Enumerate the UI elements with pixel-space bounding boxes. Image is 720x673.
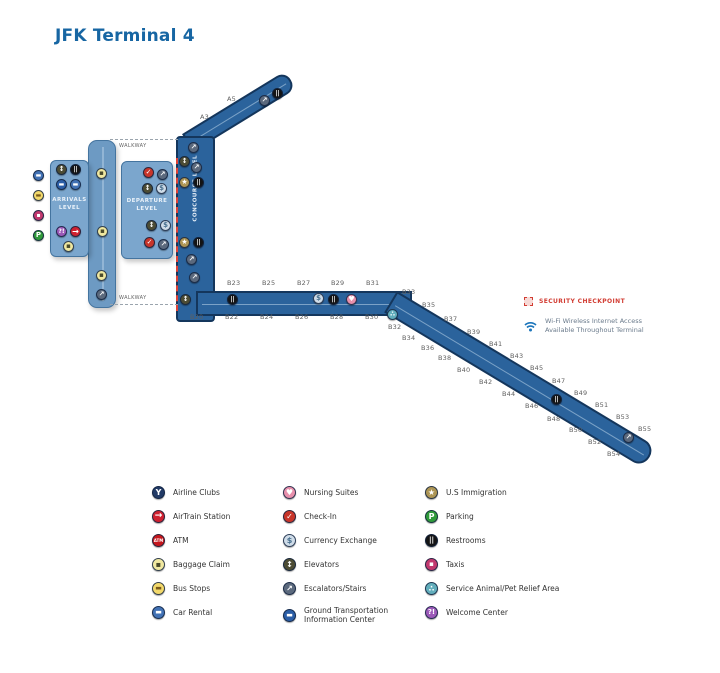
escalators-icon: ↗ bbox=[623, 432, 634, 443]
welcome-center-icon: ?! bbox=[56, 226, 67, 237]
escalators-icon: ↗ bbox=[189, 272, 200, 283]
gate-label-b49: B49 bbox=[574, 389, 587, 397]
legend-col-1: YAirline Clubs→AirTrain StationATMATM▪Ba… bbox=[152, 486, 230, 630]
walkway-dash-bottom bbox=[110, 304, 178, 305]
baggage-claim-icon: ▪ bbox=[96, 270, 107, 281]
legend-label: U.S Immigration bbox=[446, 488, 507, 497]
gate-label-b51: B51 bbox=[595, 401, 608, 409]
airtrain-icon: → bbox=[70, 226, 81, 237]
gate-label-b39: B39 bbox=[467, 328, 480, 336]
gate-label-b45: B45 bbox=[530, 364, 543, 372]
gate-label-b40: B40 bbox=[457, 366, 470, 374]
legend-item: ▬Ground Transportation Information Cente… bbox=[283, 606, 388, 624]
legend-item: ∴Service Animal/Pet Relief Area bbox=[425, 582, 559, 595]
elevators-icon: ↕ bbox=[179, 156, 190, 167]
currency-exchange-icon: $ bbox=[313, 293, 324, 304]
gate-label-b41: B41 bbox=[489, 340, 502, 348]
currency-exchange-icon: $ bbox=[160, 220, 171, 231]
legend-label: Bus Stops bbox=[173, 584, 210, 593]
elevators-icon: ↕ bbox=[56, 164, 67, 175]
us-immigration-icon: ★ bbox=[179, 237, 190, 248]
gate-label-b26: B26 bbox=[295, 313, 308, 321]
gate-label-b27: B27 bbox=[297, 279, 310, 287]
legend-label: Currency Exchange bbox=[304, 536, 377, 545]
gate-label-b43: B43 bbox=[510, 352, 523, 360]
walkway-strip bbox=[88, 140, 116, 308]
elevators-icon: ↕ bbox=[146, 220, 157, 231]
restrooms-icon: || bbox=[70, 164, 81, 175]
service-animal-icon: ∴ bbox=[387, 309, 398, 320]
legend-item: ↗Escalators/Stairs bbox=[283, 582, 388, 595]
legend-label: Taxis bbox=[446, 560, 464, 569]
legend-label: Nursing Suites bbox=[304, 488, 358, 497]
check-in-icon: ✓ bbox=[144, 237, 155, 248]
baggage-claim-icon: ▪ bbox=[96, 168, 107, 179]
legend-item: $Currency Exchange bbox=[283, 534, 388, 547]
gate-label-b37: B37 bbox=[444, 315, 457, 323]
parking-icon: P bbox=[33, 230, 44, 241]
legend-label: Welcome Center bbox=[446, 608, 508, 617]
gate-label-a3: A3 bbox=[200, 113, 209, 121]
legend-item: ▪Taxis bbox=[425, 558, 559, 571]
legend-item: ▬Bus Stops bbox=[152, 582, 230, 595]
restrooms-icon: || bbox=[328, 294, 339, 305]
legend-label: Restrooms bbox=[446, 536, 486, 545]
legend-item: ?!Welcome Center bbox=[425, 606, 559, 619]
escalators-icon: ↗ bbox=[157, 169, 168, 180]
escalators-icon: ↗ bbox=[191, 162, 202, 173]
legend-item: ATMATM bbox=[152, 534, 230, 547]
bus-stops-icon: ▬ bbox=[152, 582, 165, 595]
legend-label: AirTrain Station bbox=[173, 512, 230, 521]
legend-label: Airline Clubs bbox=[173, 488, 220, 497]
legend-col-2: ♥Nursing Suites✓Check-In$Currency Exchan… bbox=[283, 486, 388, 635]
car-rental-icon: ▬ bbox=[152, 606, 165, 619]
gate-label-b28: B28 bbox=[330, 313, 343, 321]
airtrain-icon: → bbox=[152, 510, 165, 523]
elevators-icon: ↕ bbox=[283, 558, 296, 571]
currency-exchange-icon: $ bbox=[156, 183, 167, 194]
security-checkpoint-icon bbox=[524, 297, 533, 306]
escalators-icon: ↗ bbox=[96, 289, 107, 300]
gate-label-b22: B22 bbox=[225, 313, 238, 321]
gate-label-b48: B48 bbox=[547, 415, 560, 423]
check-in-icon: ✓ bbox=[283, 510, 296, 523]
gate-label-b34: B34 bbox=[402, 334, 415, 342]
taxis-icon: ▪ bbox=[425, 558, 438, 571]
jfk-terminal4-map-page: JFK Terminal 4 ARRIVALS LEVEL DEPARTURE … bbox=[0, 0, 720, 673]
gate-label-b50: B50 bbox=[569, 426, 582, 434]
gate-label-b25: B25 bbox=[262, 279, 275, 287]
gate-label-b20: B20 bbox=[190, 313, 203, 321]
service-animal-icon: ∴ bbox=[425, 582, 438, 595]
welcome-center-icon: ?! bbox=[425, 606, 438, 619]
currency-exchange-icon: $ bbox=[283, 534, 296, 547]
gate-label-b53: B53 bbox=[616, 413, 629, 421]
wifi-icon bbox=[524, 317, 539, 336]
restrooms-icon: || bbox=[272, 88, 283, 99]
security-checkpoint-label: SECURITY CHECKPOINT bbox=[539, 298, 625, 305]
legend-label: Service Animal/Pet Relief Area bbox=[446, 584, 559, 593]
atm-icon: ATM bbox=[152, 534, 165, 547]
security-checkpoint-line bbox=[176, 158, 178, 311]
legend-item: ↕Elevators bbox=[283, 558, 388, 571]
ground-transport-icon: ▬ bbox=[56, 179, 67, 190]
gate-label-b52: B52 bbox=[588, 438, 601, 446]
gate-label-b47: B47 bbox=[552, 377, 565, 385]
car-rental-icon: ▬ bbox=[33, 170, 44, 181]
baggage-claim-icon: ▪ bbox=[152, 558, 165, 571]
legend-item: ♥Nursing Suites bbox=[283, 486, 388, 499]
legend-label: Escalators/Stairs bbox=[304, 584, 366, 593]
nursing-suites-icon: ♥ bbox=[346, 294, 357, 305]
gate-label-b33: B33 bbox=[402, 288, 415, 296]
elevators-icon: ↕ bbox=[142, 183, 153, 194]
bus-stops-icon: ▬ bbox=[33, 190, 44, 201]
legend-col-3: ★U.S ImmigrationPParking||Restrooms▪Taxi… bbox=[425, 486, 559, 630]
security-checkpoint-legend: SECURITY CHECKPOINT bbox=[524, 297, 674, 306]
us-immigration-icon: ★ bbox=[179, 177, 190, 188]
legend-label: Elevators bbox=[304, 560, 339, 569]
legend-label: Baggage Claim bbox=[173, 560, 230, 569]
legend-item: ▪Baggage Claim bbox=[152, 558, 230, 571]
airline-clubs-icon: Y bbox=[152, 486, 165, 499]
check-in-icon: ✓ bbox=[143, 167, 154, 178]
gate-label-b32: B32 bbox=[388, 323, 401, 331]
gate-label-b24: B24 bbox=[260, 313, 273, 321]
legend-item: ★U.S Immigration bbox=[425, 486, 559, 499]
wifi-legend: Wi-Fi Wireless Internet Access Available… bbox=[524, 317, 674, 336]
legend-item: PParking bbox=[425, 510, 559, 523]
taxis-icon: ▪ bbox=[33, 210, 44, 221]
gate-label-b30: B30 bbox=[365, 313, 378, 321]
legend-label: ATM bbox=[173, 536, 189, 545]
gate-label-b55: B55 bbox=[638, 425, 651, 433]
side-legend: SECURITY CHECKPOINT Wi-Fi Wireless Inter… bbox=[524, 297, 674, 336]
gate-label-b36: B36 bbox=[421, 344, 434, 352]
restrooms-icon: || bbox=[425, 534, 438, 547]
restrooms-icon: || bbox=[227, 294, 238, 305]
legend-item: ||Restrooms bbox=[425, 534, 559, 547]
legend-item: ▬Car Rental bbox=[152, 606, 230, 619]
legend-item: YAirline Clubs bbox=[152, 486, 230, 499]
ground-transport-icon: ▬ bbox=[283, 609, 296, 622]
gate-label-b31: B31 bbox=[366, 279, 379, 287]
legend-label: Parking bbox=[446, 512, 474, 521]
wifi-label: Wi-Fi Wireless Internet Access Available… bbox=[545, 317, 644, 335]
arrivals-level-label: ARRIVALS LEVEL bbox=[51, 196, 88, 213]
walkway-bottom-label: WALKWAY bbox=[119, 295, 147, 301]
us-immigration-icon: ★ bbox=[425, 486, 438, 499]
gate-label-b35: B35 bbox=[422, 301, 435, 309]
restrooms-icon: || bbox=[551, 394, 562, 405]
legend-label: Ground Transportation Information Center bbox=[304, 606, 388, 624]
legend-label: Check-In bbox=[304, 512, 337, 521]
baggage-claim-icon: ▪ bbox=[63, 241, 74, 252]
elevators-icon: ↕ bbox=[180, 294, 191, 305]
parking-icon: P bbox=[425, 510, 438, 523]
terminal-map: ARRIVALS LEVEL DEPARTURE LEVEL CONCOURSE… bbox=[0, 0, 720, 500]
escalators-icon: ↗ bbox=[259, 95, 270, 106]
legend-item: →AirTrain Station bbox=[152, 510, 230, 523]
gate-label-a5: A5 bbox=[227, 95, 236, 103]
escalators-icon: ↗ bbox=[186, 254, 197, 265]
walkway-dash-top bbox=[110, 139, 178, 140]
gate-label-b44: B44 bbox=[502, 390, 515, 398]
nursing-suites-icon: ♥ bbox=[283, 486, 296, 499]
escalators-icon: ↗ bbox=[188, 142, 199, 153]
car-rental-icon: ▬ bbox=[70, 179, 81, 190]
departure-level-label: DEPARTURE LEVEL bbox=[123, 197, 171, 214]
escalators-icon: ↗ bbox=[158, 239, 169, 250]
gate-label-b46: B46 bbox=[525, 402, 538, 410]
gate-label-b29: B29 bbox=[331, 279, 344, 287]
baggage-claim-icon: ▪ bbox=[97, 226, 108, 237]
walkway-top-label: WALKWAY bbox=[119, 143, 147, 149]
gate-label-b42: B42 bbox=[479, 378, 492, 386]
restrooms-icon: || bbox=[193, 177, 204, 188]
concourse-level-label: CONCOURSE LEVEL bbox=[191, 183, 199, 222]
restrooms-icon: || bbox=[193, 237, 204, 248]
gate-label-b23: B23 bbox=[227, 279, 240, 287]
legend-item: ✓Check-In bbox=[283, 510, 388, 523]
legend-label: Car Rental bbox=[173, 608, 212, 617]
gate-label-b54: B54 bbox=[607, 450, 620, 458]
gate-label-b38: B38 bbox=[438, 354, 451, 362]
escalators-icon: ↗ bbox=[283, 582, 296, 595]
